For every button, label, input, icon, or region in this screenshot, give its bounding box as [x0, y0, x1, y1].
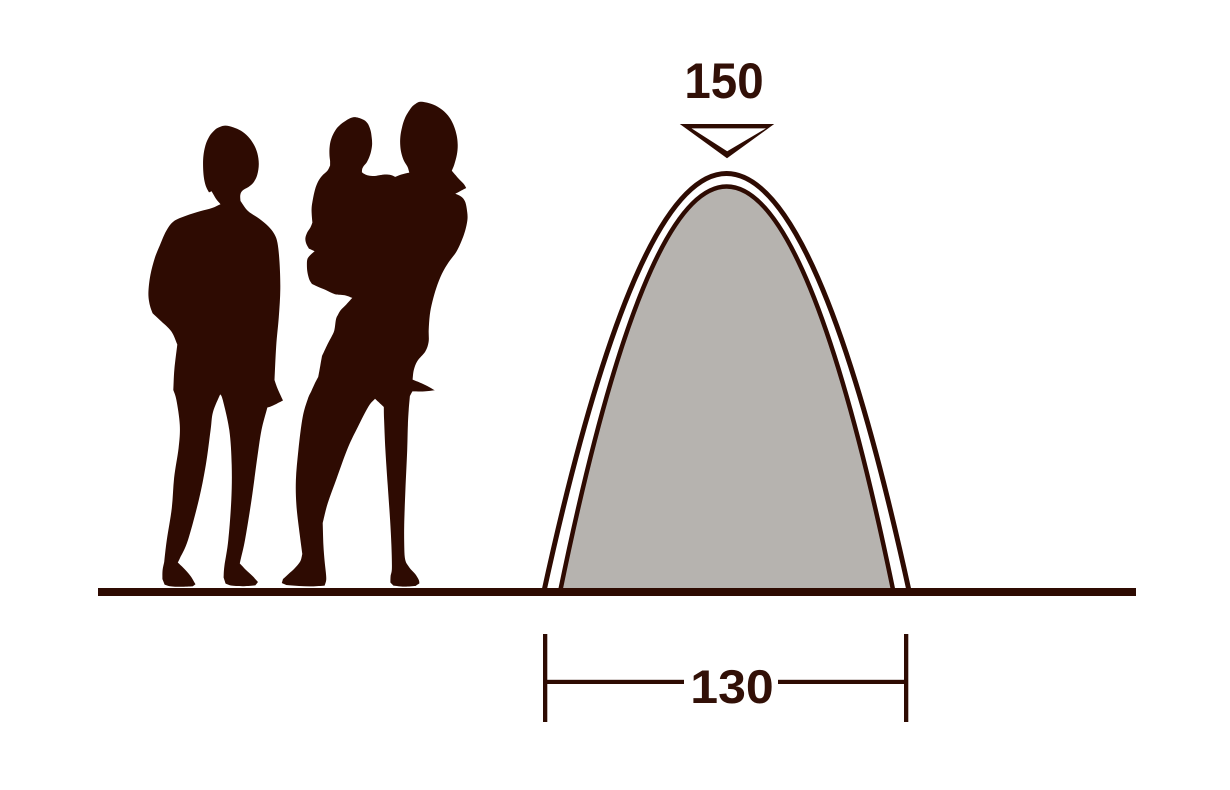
svg-text:130: 130 [690, 661, 773, 714]
svg-text:150: 150 [684, 54, 763, 109]
